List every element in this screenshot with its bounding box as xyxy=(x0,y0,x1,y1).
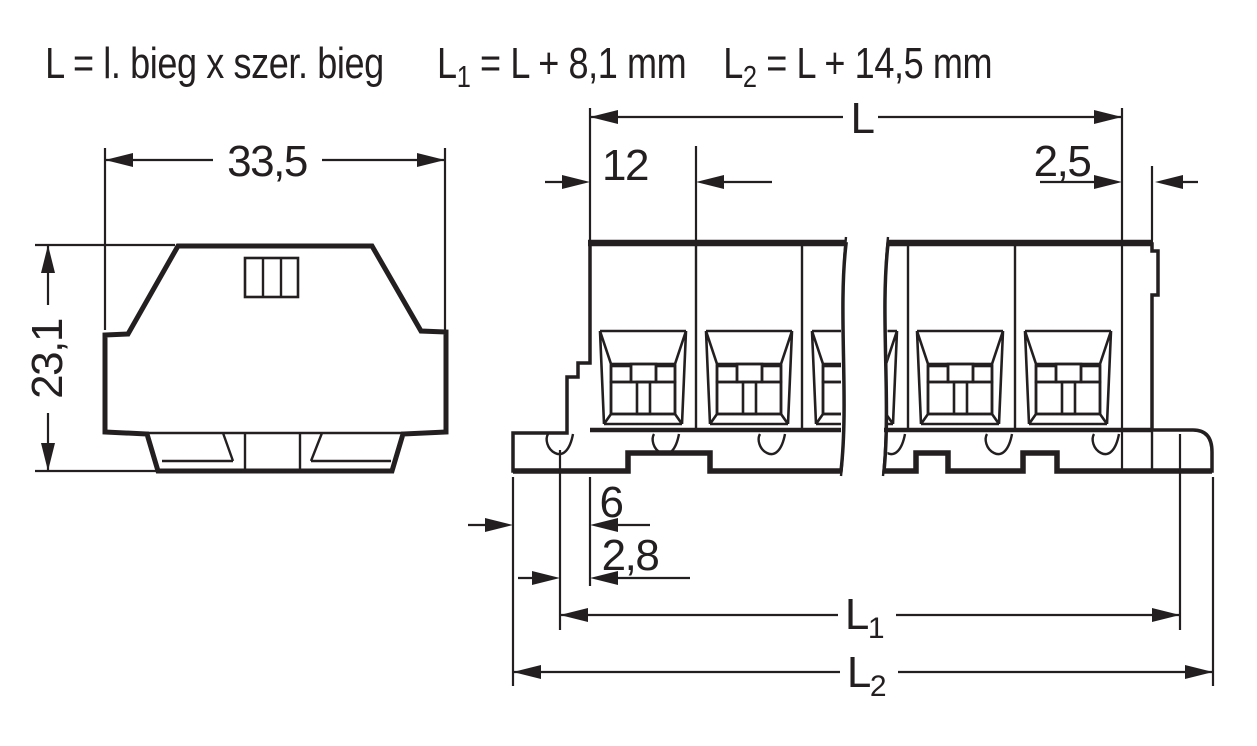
dim-end-2-5: 2,5 xyxy=(1034,137,1198,189)
terminal-block-dimensional-drawing: L = l. bieg x szer. bieg L1 = L + 8,1 mm… xyxy=(0,0,1257,746)
dim-height-23-1: 23,1 xyxy=(23,245,175,471)
side-view-foot-details xyxy=(147,433,403,471)
dim-label-2-5: 2,5 xyxy=(1034,137,1091,186)
module-funnel xyxy=(706,331,792,424)
dim-length-L: L xyxy=(590,94,1122,143)
legend-relation: L = l. bieg x szer. bieg xyxy=(45,39,384,88)
dim-label-L1: L1 xyxy=(845,590,884,645)
module-funnel xyxy=(917,331,1003,424)
arrowhead xyxy=(1094,110,1122,124)
front-view: L 12 2,5 6 2,8 xyxy=(468,94,1213,703)
side-view: 33,5 23,1 xyxy=(23,137,446,471)
dim-label-2-8: 2,8 xyxy=(602,531,659,580)
arrowhead xyxy=(41,443,55,471)
dim-width-33-5: 33,5 xyxy=(105,137,445,330)
arrowhead xyxy=(417,153,445,167)
latch-hook xyxy=(986,434,1012,454)
arrowhead xyxy=(1152,608,1180,622)
marking-window-dividers xyxy=(263,258,281,297)
arrowhead xyxy=(532,571,560,585)
latch-hook xyxy=(1093,434,1119,454)
dim-label-L: L xyxy=(851,94,875,143)
arrowhead xyxy=(513,665,541,679)
arrowhead xyxy=(1155,175,1183,189)
dim-L2: L2 xyxy=(513,648,1213,703)
module-funnel xyxy=(600,331,686,424)
arrowhead xyxy=(1185,665,1213,679)
arrowhead xyxy=(41,245,55,273)
arrowhead xyxy=(485,518,513,532)
legend-l2-formula: L2 = L + 14,5 mm xyxy=(723,39,992,95)
side-view-body xyxy=(105,246,446,471)
arrowhead xyxy=(696,175,724,189)
dim-label-L2: L2 xyxy=(847,648,886,703)
break-lines xyxy=(841,237,888,476)
drawing-canvas: L = l. bieg x szer. bieg L1 = L + 8,1 mm… xyxy=(0,0,1257,746)
dim-label-6: 6 xyxy=(600,478,623,527)
dim-L1: L1 xyxy=(560,590,1180,645)
legend-formulas: L = l. bieg x szer. bieg L1 = L + 8,1 mm… xyxy=(45,39,992,95)
arrowhead xyxy=(105,153,133,167)
front-body-right-segment xyxy=(884,244,1212,471)
arrowhead xyxy=(1094,175,1122,189)
marking-window xyxy=(245,258,298,297)
arrowhead xyxy=(562,175,590,189)
module-dividers xyxy=(696,245,1152,470)
dim-label-33-5: 33,5 xyxy=(227,137,307,186)
dim-label-12: 12 xyxy=(602,141,648,190)
module-funnel xyxy=(1025,331,1111,424)
latch-hook xyxy=(759,434,785,454)
dim-pitch-12: 12 xyxy=(545,141,772,190)
dim-foot-offset-2-8: 2,8 xyxy=(518,531,690,585)
arrowhead xyxy=(560,608,588,622)
dim-label-23-1: 23,1 xyxy=(23,319,72,399)
arrowhead xyxy=(590,110,618,124)
front-foot-bottom-edge xyxy=(513,453,1212,471)
legend-l1-formula: L1 = L + 8,1 mm xyxy=(437,39,686,95)
module-funnel-cut-right xyxy=(811,331,905,454)
